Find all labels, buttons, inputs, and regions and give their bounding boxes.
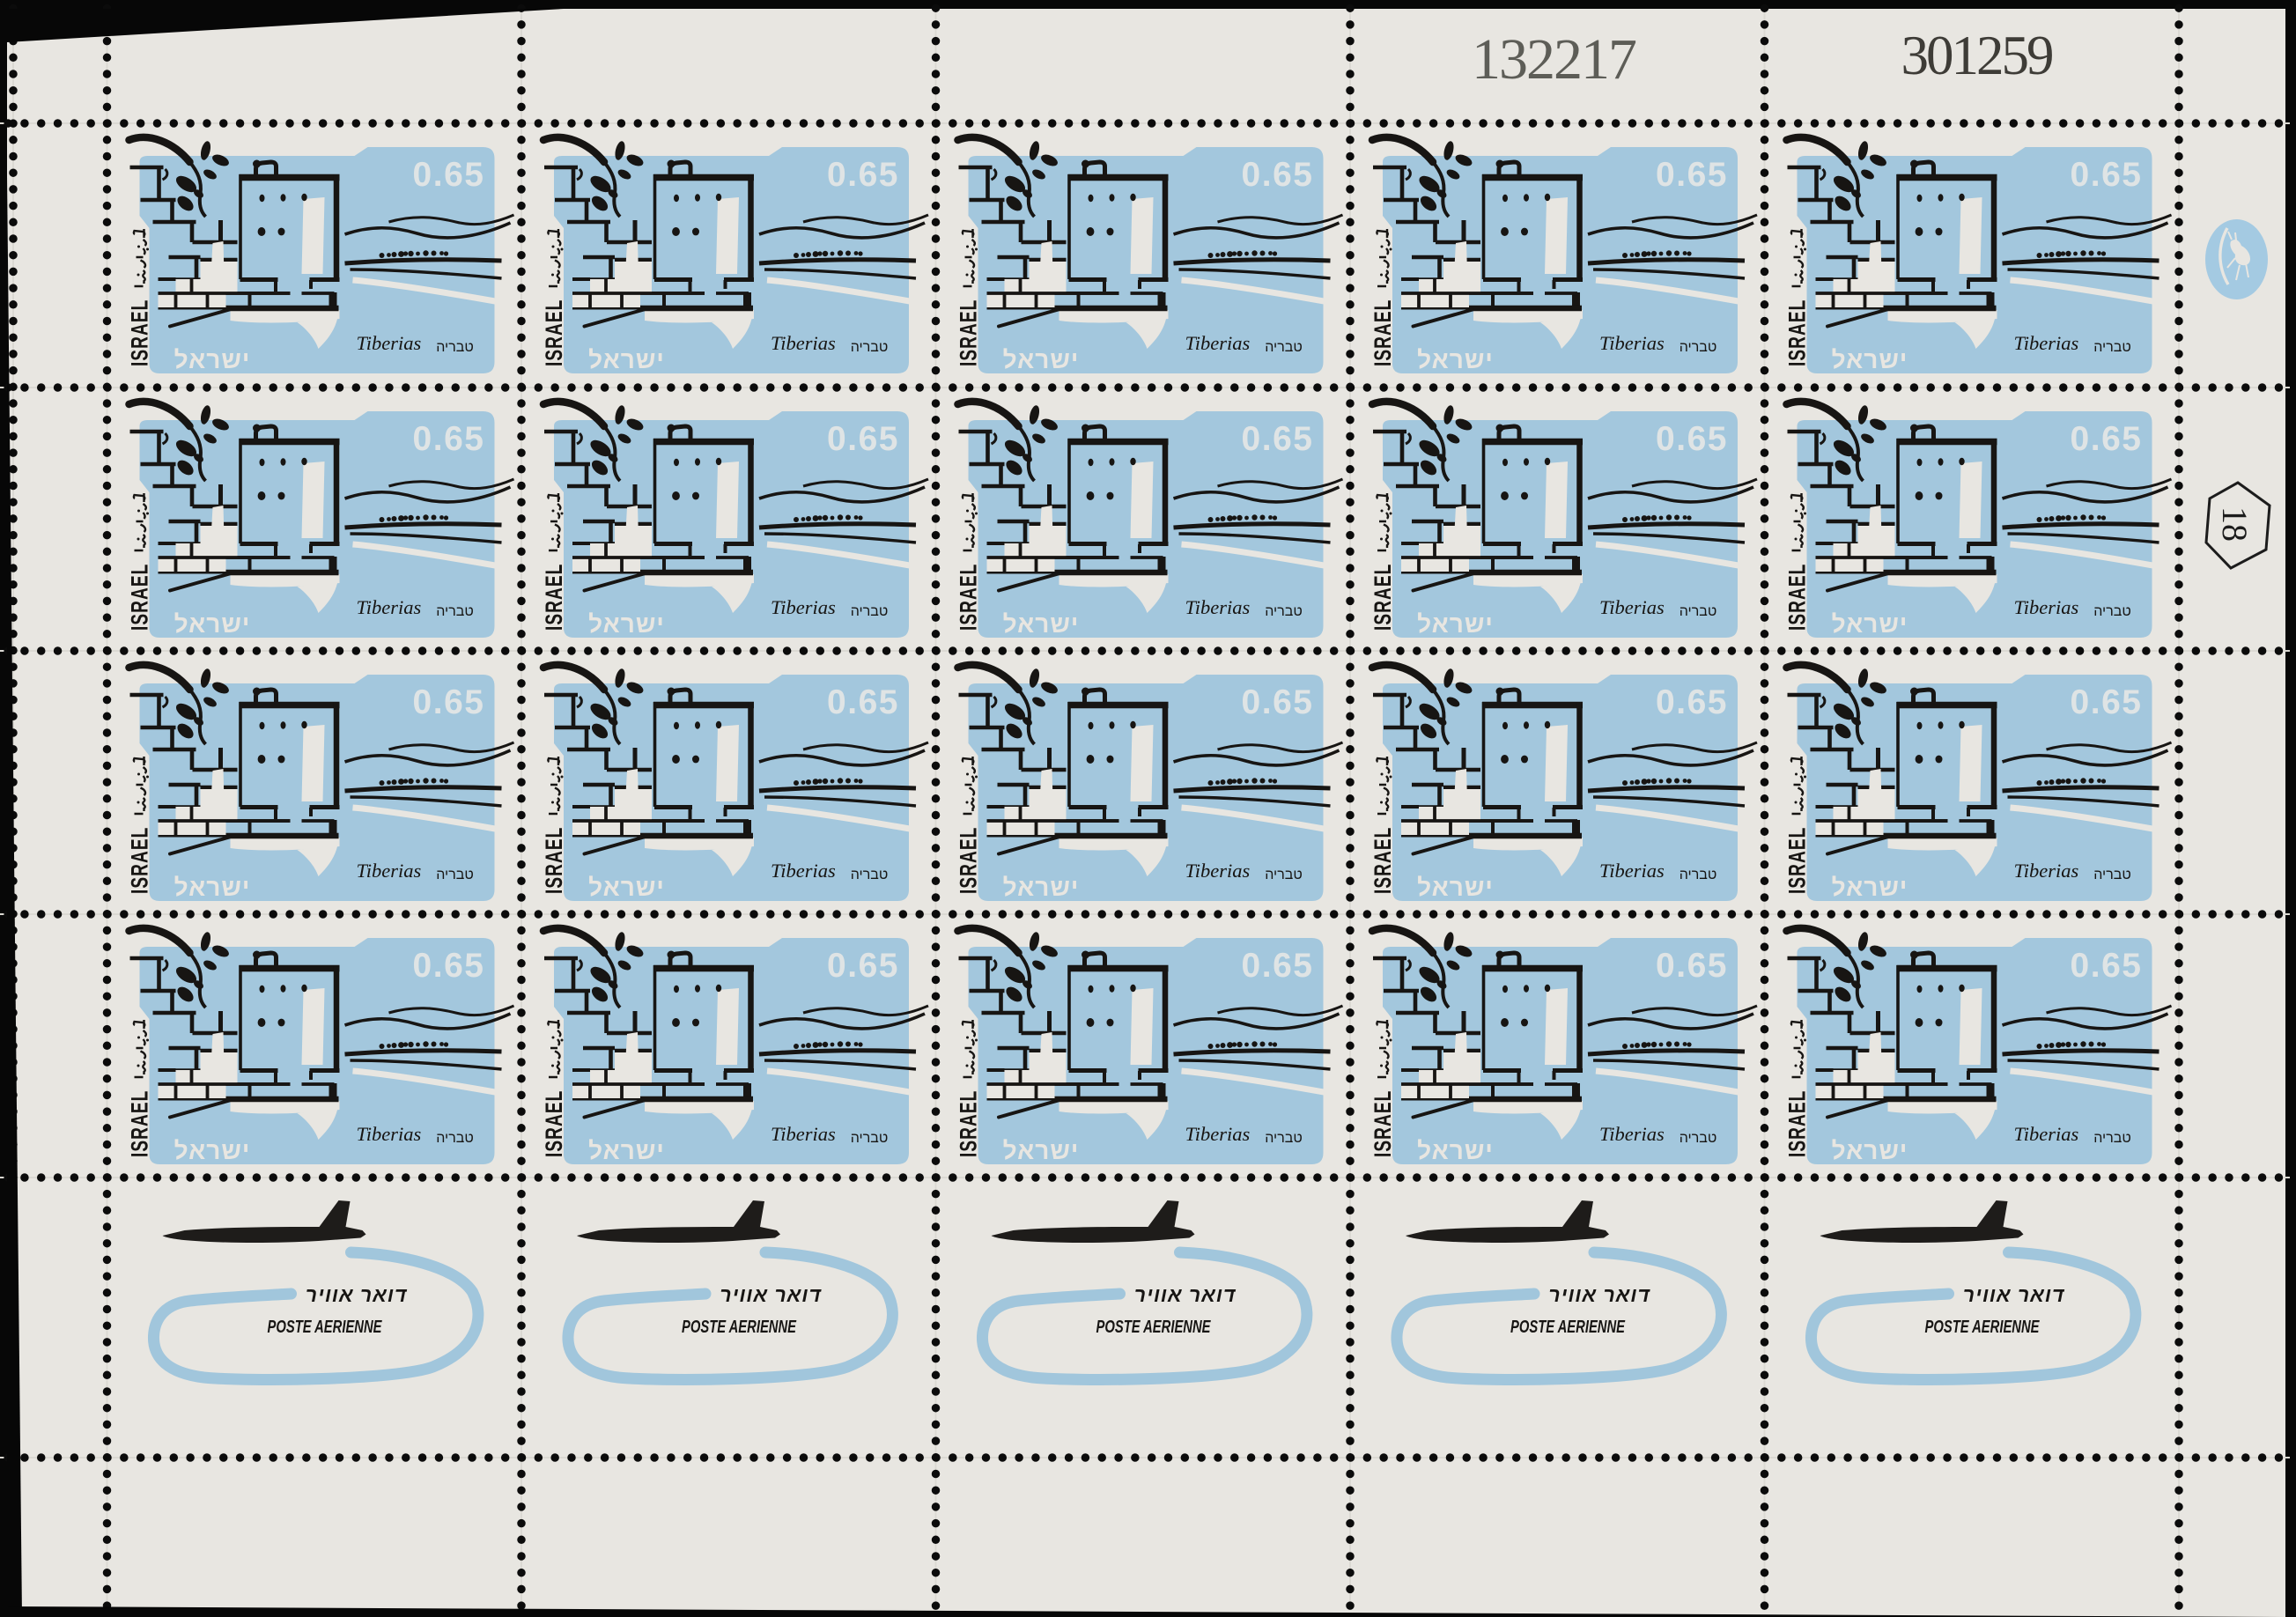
svg-text:301259: 301259	[1901, 25, 2053, 86]
svg-text:132217: 132217	[1472, 27, 1636, 92]
svg-text:18: 18	[2215, 506, 2255, 542]
